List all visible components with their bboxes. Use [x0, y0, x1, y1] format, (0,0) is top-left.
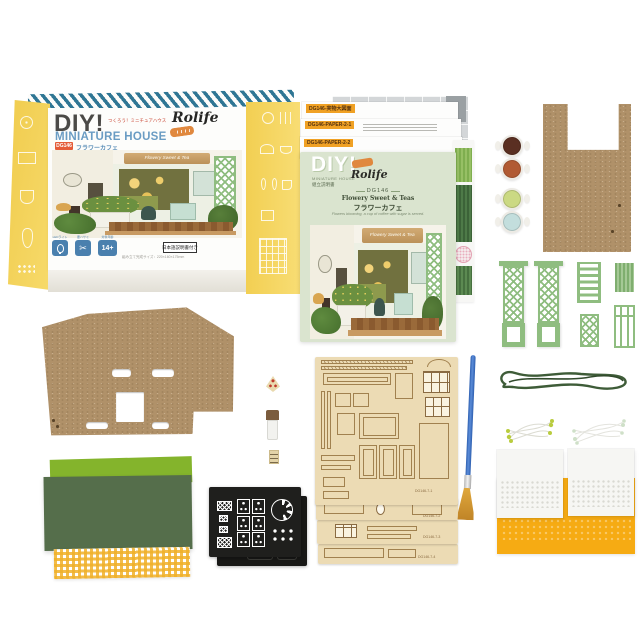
tools-feature-badge: ✂ — [75, 240, 91, 256]
cafe-bush-left — [311, 307, 341, 334]
stamen-bundle-yellow — [502, 412, 558, 455]
felt-sheet-dark-green — [43, 475, 192, 551]
wood-part-inner — [363, 449, 374, 476]
wood-part-outline — [367, 534, 411, 539]
doodle-waffle-grid-icon — [259, 238, 287, 274]
mdf-slot — [152, 422, 169, 429]
dash-rule — [391, 191, 400, 192]
wood-door-part — [379, 445, 397, 479]
hedge-sticker — [455, 266, 472, 295]
wood-part-inner — [327, 377, 388, 382]
wood-cabinet-part — [395, 373, 413, 399]
cafe-table — [141, 206, 156, 220]
instruction-booklet: DIY! MINIATURE HOUSE 組立説明書 Rolife DG146 … — [300, 152, 456, 342]
paint-pot-yellow-green — [501, 188, 523, 210]
wood-part-outline — [323, 373, 391, 385]
paint-pot-pale-blue — [501, 211, 523, 233]
doodle-pendant-lamp-icon — [261, 178, 266, 190]
paper-pattern-band — [500, 480, 560, 508]
lattice-part — [219, 526, 228, 533]
wood-window-part — [335, 524, 357, 538]
trellis-base-hole — [542, 327, 555, 342]
box-left-panel — [8, 100, 50, 290]
cafe-awning-sign: Flowery Sweet & Tea — [124, 153, 210, 164]
black-detail-sheet-front — [209, 487, 301, 557]
wood-tall-panel-part — [419, 423, 449, 479]
trellis-lattice — [538, 266, 559, 323]
window-transom — [616, 315, 633, 317]
wood-beam-part — [321, 366, 407, 370]
ironwork-panel-grid — [237, 499, 265, 547]
wood-door-part — [359, 445, 377, 479]
wood-part-outline — [388, 549, 416, 558]
ironwork-cell — [237, 516, 250, 531]
cafe-window — [411, 252, 427, 284]
doodle-pendant-lamp-icon — [272, 178, 277, 190]
trellis-lattice — [503, 266, 524, 323]
wood-sheet-label: DG146-7-1 — [415, 489, 432, 493]
wood-part-outline — [321, 465, 351, 470]
booklet-brand-logo: Rolife — [351, 168, 388, 181]
cafe-bench — [394, 293, 413, 315]
age-feature-badge: 14+ — [98, 240, 117, 256]
mdf-pinhole — [618, 204, 621, 207]
paint-pot-tab — [524, 217, 530, 226]
wood-arch-part — [427, 359, 451, 367]
glue-vial — [267, 420, 278, 440]
ladder-rack-part — [577, 262, 601, 303]
wood-part-inner — [403, 449, 412, 476]
floral-wire — [495, 362, 629, 405]
sticker-sheet — [453, 140, 474, 302]
wood-strip-part — [327, 391, 331, 449]
wood-sheet-label: DG146-7-2 — [423, 514, 440, 518]
cafe-awning-sign: Flowery Sweet & Tea — [362, 228, 423, 243]
box-photo-cafe: Flowery Sweet & Tea — [52, 150, 242, 238]
wood-part-outline — [335, 393, 351, 407]
wood-part-outline — [323, 491, 349, 499]
box-model-badge: DG146 — [55, 142, 73, 150]
brush-handle — [465, 355, 475, 477]
product-box: DIY! つくろう！ミニチュアハウス MINIATURE HOUSE DG146… — [8, 90, 300, 298]
box-bottom-edge — [48, 270, 246, 292]
wood-sheet-1: DG146-7-1 — [315, 357, 458, 505]
wood-part-outline — [324, 548, 384, 558]
paint-brush — [453, 355, 484, 526]
wood-part-inner — [383, 449, 394, 476]
trellis-base — [537, 323, 560, 347]
led-feature-badge — [52, 240, 68, 256]
doodle-bowl-icon — [280, 146, 292, 154]
mdf-square-hole — [116, 392, 144, 422]
window-mullion — [620, 307, 622, 346]
wood-part-inner — [363, 417, 396, 436]
mdf-slot — [152, 369, 174, 377]
cafe-bench — [170, 203, 197, 220]
cafe-dog-figure — [313, 293, 324, 303]
kit-flatlay-photo: DIY! つくろう！ミニチュアハウス MINIATURE HOUSE DG146… — [0, 0, 640, 640]
paper-sheet-label: DG146-PAPER-2-1 — [305, 121, 354, 129]
mdf-pinhole — [611, 230, 614, 233]
lace-doily-sticker — [455, 246, 472, 263]
doodle-chandelier-icon — [262, 112, 274, 124]
paint-pot-rust — [501, 158, 523, 180]
paper-sheet-label: DG146-PAPER-2-2 — [304, 139, 353, 147]
wood-sheet-label: DG146-7-3 — [423, 535, 440, 539]
paper-sheet-label: DG146-実物大図面 — [306, 104, 355, 113]
ironwork-cell — [252, 516, 265, 531]
cafe-window — [193, 171, 216, 196]
paint-pot-tab — [524, 194, 530, 203]
mdf-panel-large — [35, 306, 237, 438]
brush-bristles — [458, 488, 475, 521]
wood-window-part — [425, 397, 450, 417]
pattern-paper-white-left — [497, 450, 563, 518]
paint-pot-tab — [524, 141, 530, 150]
booklet-tagline: Flowers blooming, a cup of coffee with s… — [300, 212, 456, 216]
wood-part-outline — [353, 393, 369, 407]
cafe-mirror — [318, 255, 332, 273]
brush-ferrule — [464, 475, 472, 489]
booklet-photo-cafe: Flowery Sweet & Tea — [310, 225, 446, 339]
grass-sticker — [455, 148, 472, 182]
mini-wood-part — [269, 450, 279, 464]
cafe-deck-edge — [105, 231, 236, 235]
wood-part-outline — [323, 477, 345, 487]
corrugated-part — [615, 263, 634, 292]
ironwork-cell — [237, 532, 250, 547]
window-frame-part — [614, 305, 635, 348]
wood-sheet-4: DG146-7-4 — [318, 544, 458, 564]
doodle-shelf-icon — [18, 152, 36, 164]
wood-beam-part — [321, 360, 413, 364]
ironwork-cell — [252, 532, 265, 547]
small-lattice-part — [580, 314, 599, 347]
ironwork-cell — [252, 499, 265, 514]
booklet-model: DG146 — [300, 188, 456, 194]
wood-part-outline — [337, 413, 355, 435]
badge-led-label: LEDライト — [52, 235, 68, 239]
window-mullion — [627, 307, 629, 346]
trellis-column — [501, 261, 526, 347]
ironwork-cell — [237, 499, 250, 514]
wood-window-part — [423, 371, 450, 393]
lattice-part — [217, 501, 232, 511]
box-front-face: DIY! つくろう！ミニチュアハウス MINIATURE HOUSE DG146… — [48, 108, 246, 270]
box-title-note: つくろう！ミニチュアハウス — [108, 118, 166, 124]
doodle-lamp-icon — [20, 116, 33, 129]
trellis-base — [502, 323, 525, 347]
doodle-house-icon — [261, 210, 274, 221]
pattern-paper-white-right — [568, 449, 634, 516]
wood-sheet-3: DG146-7-3 — [317, 520, 458, 544]
age-value: 14+ — [102, 245, 114, 252]
cafe-bush-left — [54, 213, 96, 234]
led-bulb-icon — [57, 244, 64, 253]
lattice-part — [219, 515, 228, 522]
wood-strip-part — [321, 391, 325, 449]
gingham-fabric-yellow — [54, 547, 191, 579]
doodle-plant-icon — [20, 190, 34, 204]
lattice-part — [217, 537, 232, 548]
doodle-glasses-icon — [280, 112, 292, 124]
brand-tag-icon — [169, 125, 194, 137]
glue-vial-cap — [266, 410, 279, 420]
trellis-column — [536, 261, 561, 347]
doodle-guitar-icon — [22, 228, 33, 248]
mdf-slot — [86, 422, 108, 429]
mdf-slot — [112, 369, 131, 377]
booklet-series: MINIATURE HOUSE — [312, 176, 355, 181]
trellis-base-hole — [507, 327, 520, 342]
brand-logo: Rolife — [172, 110, 219, 126]
wood-sheet-label: DG146-7-4 — [418, 555, 435, 559]
wood-part-outline — [367, 526, 417, 531]
paper-pattern-band — [501, 518, 631, 540]
mdf-pinhole — [52, 419, 55, 422]
wood-counter-part — [359, 413, 399, 439]
round-gate-part — [271, 499, 293, 521]
micro-text-lines — [363, 122, 437, 131]
paint-pot-tab — [524, 164, 530, 173]
hedge-sticker — [455, 185, 472, 242]
manual-note-box: 日本語説明書付き — [163, 242, 197, 253]
booklet-name-en: Flowery Sweet & Teas — [300, 195, 456, 202]
paper-pattern-band — [571, 479, 631, 507]
mdf-panel-small — [543, 104, 631, 252]
cafe-deck-edge — [348, 330, 442, 336]
doodle-cake-dome-icon — [260, 144, 274, 154]
cafe-table — [374, 298, 385, 316]
scissors-icon: ✂ — [79, 244, 87, 253]
cafe-dog-figure — [56, 203, 71, 211]
size-note: 組み立て完成サイズ：220×160×175mm — [122, 255, 232, 260]
small-dot-parts — [271, 527, 295, 543]
badge-tools-label: 要ハサミ — [75, 235, 91, 239]
wood-door-part — [399, 445, 415, 479]
brand-tag-icon — [352, 157, 374, 168]
wood-part-outline — [321, 455, 355, 461]
box-right-panel — [246, 102, 300, 294]
mdf-pinhole — [56, 425, 59, 428]
badge-age-label: 対象年齢 — [98, 235, 117, 239]
mini-bunting-part — [266, 376, 280, 392]
doodle-flowers-icon — [17, 264, 35, 274]
doodle-boot-icon — [282, 180, 292, 190]
paint-pot-dark-brown — [501, 135, 523, 157]
